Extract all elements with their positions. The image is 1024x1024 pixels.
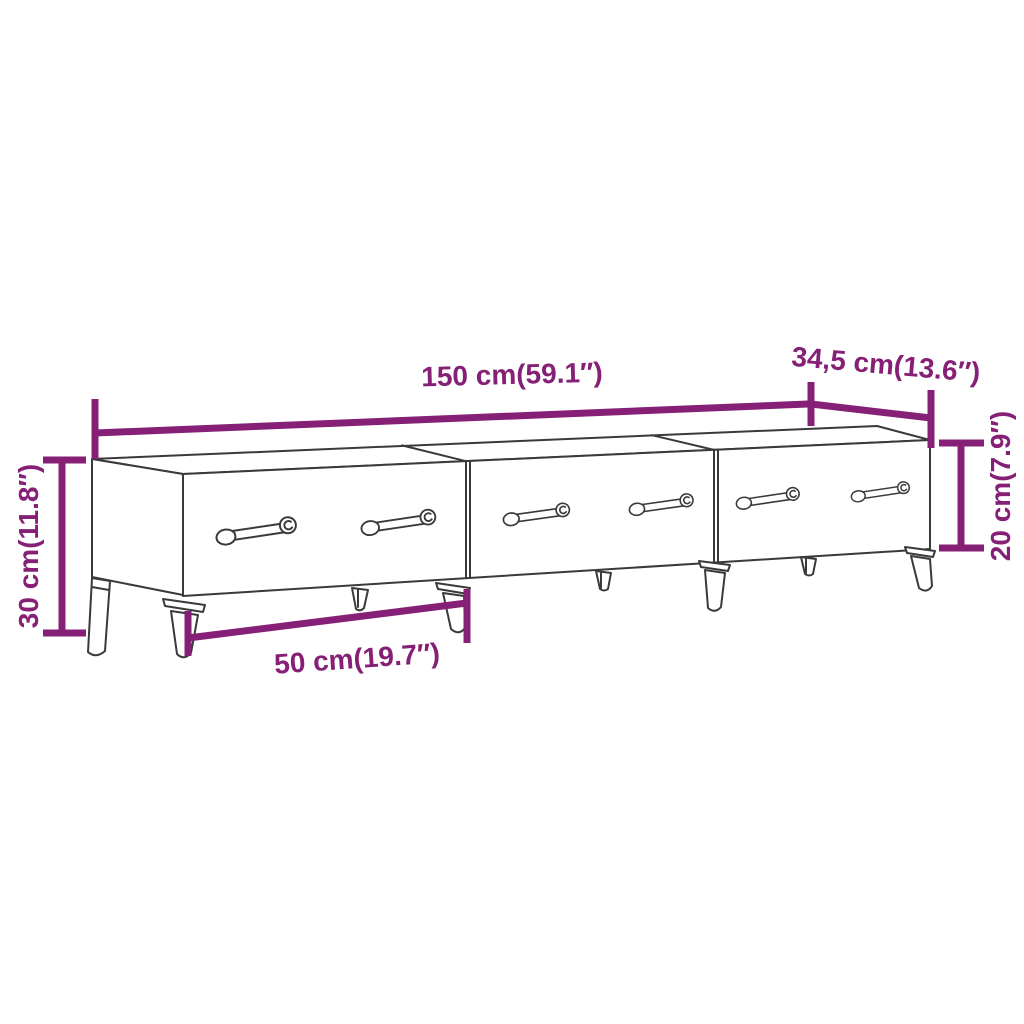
cabinet-leg [163,599,205,612]
dimension-drawer-height-label: 20 cm(7.9″) [985,411,1016,561]
cabinet-leg [801,557,816,576]
dimension-drawer-height: 20 cm(7.9″) [939,411,1016,561]
diagram-page: 150 cm(59.1″) 34,5 cm(13.6″) 30 cm(11.8″… [0,0,1024,1024]
cabinet-leg [911,556,932,591]
cabinet-leg [705,570,725,611]
cabinet-leg [596,571,611,591]
cabinet-side-face [92,459,183,595]
dimension-leg-span: 50 cm(19.7″) [188,589,467,680]
tv-stand-line-drawing [88,426,935,657]
dimension-depth-label: 34,5 cm(13.6″) [790,341,981,388]
cabinet-leg [443,593,465,632]
dimension-width-label: 150 cm(59.1″) [421,357,603,393]
dimension-height: 30 cm(11.8″) [13,460,86,633]
dimension-height-label: 30 cm(11.8″) [13,464,44,628]
cabinet-leg [352,588,368,610]
tv-stand-dimension-diagram: 150 cm(59.1″) 34,5 cm(13.6″) 30 cm(11.8″… [0,0,1024,1024]
dimension-leg-span-label: 50 cm(19.7″) [273,637,441,680]
